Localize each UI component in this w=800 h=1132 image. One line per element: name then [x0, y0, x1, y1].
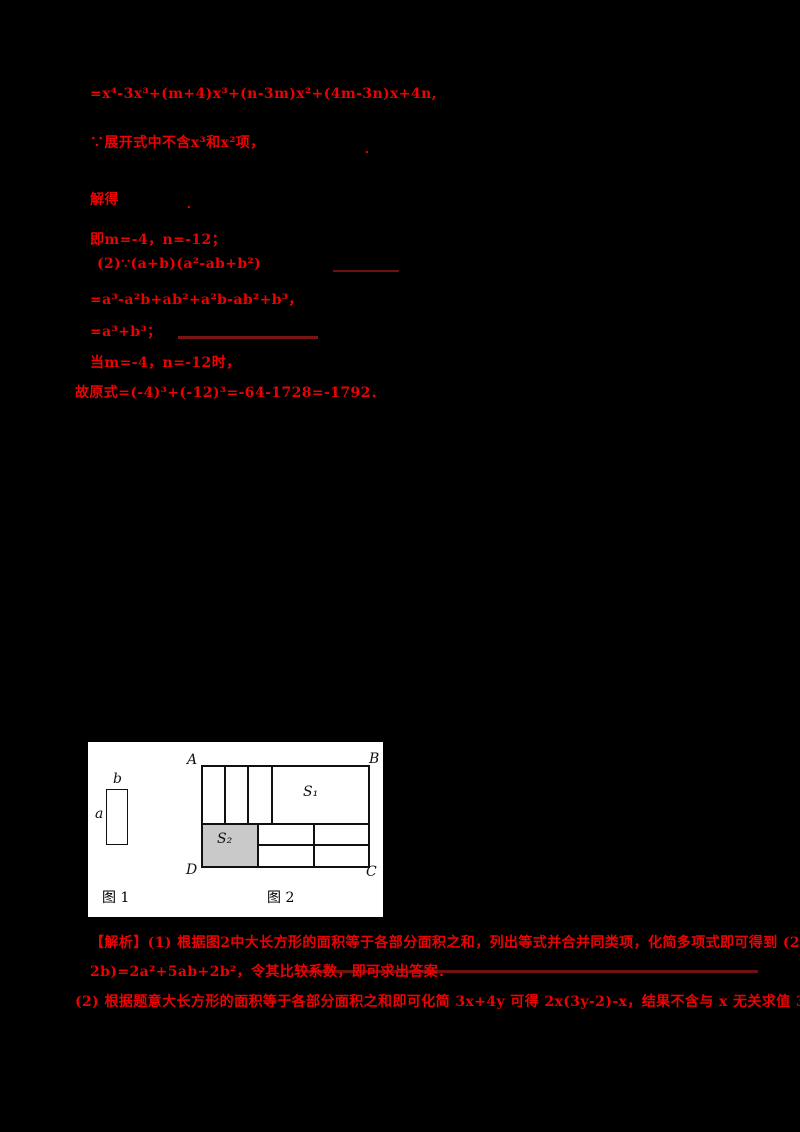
math-line-cube-sum: =a³+b³；: [90, 321, 161, 341]
math-line-expansion: =x⁴-3x³+(m+4)x³+(n-3m)x²+(4m-3n)x+4n,: [90, 86, 437, 102]
fig2-top-divider-3: [271, 767, 273, 823]
fig2-caption: 图 2: [267, 887, 294, 907]
fig2-top-divider-2: [247, 767, 249, 823]
math-line-part2-product: (2)∵(a+b)(a²-ab+b²): [97, 256, 261, 272]
fig2-grid-vline: [313, 825, 315, 866]
fig2-corner-b: B: [369, 751, 379, 767]
fig2-rectangle-abcd: [201, 765, 370, 868]
fig2-top-divider-1: [224, 767, 226, 823]
document-page: =x⁴-3x³+(m+4)x³+(n-3m)x²+(4m-3n)x+4n, ∵展…: [0, 0, 800, 1132]
math-line-final-result: 故原式=(-4)³+(-12)³=-64-1728=-1792．: [75, 382, 385, 402]
fig2-corner-c: C: [366, 864, 377, 880]
underline-streak-1: [333, 270, 399, 272]
math-line-condition: ∵展开式中不含x³和x²项，: [90, 132, 265, 152]
analysis-line-3: (2) 根据题意大长方形的面积等于各部分面积之和即可化简 3x+4y 可得 2x…: [75, 991, 800, 1011]
stray-period-1: ．: [364, 140, 376, 157]
analysis-line-2: 2b)=2a²+5ab+2b²，令其比较系数，即可求出答案．: [90, 961, 453, 981]
analysis-line-1: 【解析】(1) 根据图2中大长方形的面积等于各部分面积之和，列出等式并合并同类项…: [90, 932, 800, 952]
math-line-expanded-cubes: =a³-a²b+ab²+a²b-ab²+b³，: [90, 289, 303, 309]
fig1-label-b: b: [113, 771, 122, 787]
fig1-caption: 图 1: [102, 887, 129, 907]
stray-period-2: ．: [186, 195, 198, 212]
math-line-solve: 解得: [90, 189, 119, 209]
figure-panel: b a A B D C S₁ S₂ 图 1 图 2: [88, 742, 383, 917]
math-line-substitution: 当m=-4，n=-12时，: [90, 352, 241, 372]
underline-streak-2: [178, 336, 318, 339]
fig1-rectangle: [106, 789, 128, 845]
math-line-m-n-values: 即m=-4，n=-12；: [90, 229, 226, 249]
fig2-corner-a: A: [187, 752, 197, 768]
fig2-label-s2: S₂: [217, 831, 232, 847]
fig2-label-s1: S₁: [303, 784, 318, 800]
fig1-label-a: a: [95, 806, 103, 822]
fig2-corner-d: D: [186, 862, 197, 878]
fig2-grid-hline: [259, 844, 368, 846]
